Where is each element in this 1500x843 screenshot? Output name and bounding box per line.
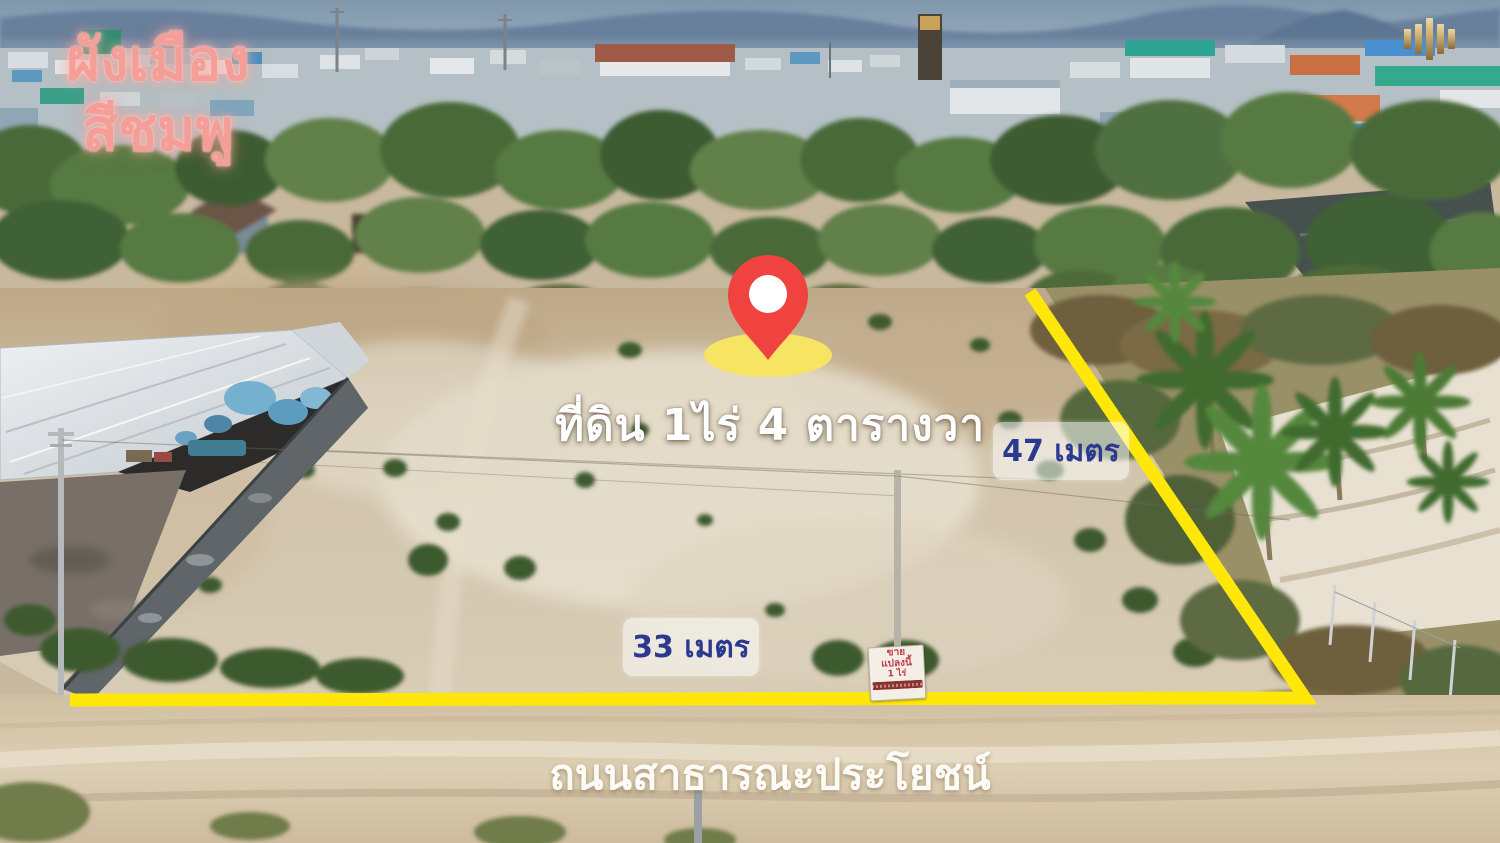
- logo-bar: [1437, 24, 1444, 54]
- sale-sign-line2: แปลงนี้: [881, 657, 912, 670]
- logo-bar: [1415, 24, 1422, 54]
- logo-bar: [1426, 18, 1433, 60]
- frontage-measurement-badge: 33 เมตร: [623, 618, 759, 676]
- logo-bar: [1404, 29, 1411, 49]
- side-measurement-badge: 47 เมตร: [993, 422, 1129, 480]
- sale-sign-line3: 1 ไร่: [887, 669, 906, 681]
- gold-bars-logo: [1404, 16, 1460, 62]
- zoning-label-line2: สีชมพู: [28, 96, 288, 166]
- side-measurement-text: 47 เมตร: [1002, 428, 1120, 475]
- location-pin-graphic: [688, 254, 848, 386]
- location-marker: [688, 254, 848, 386]
- zoning-label: ผังเมือง สีชมพู: [28, 26, 288, 165]
- road-label: ถนนสาธารณะประโยชน์: [450, 742, 1090, 808]
- logo-bar: [1448, 29, 1455, 49]
- aerial-photo: ผังเมือง สีชมพู ที่ดิน 1ไร่ 4 ตารางวา 47…: [0, 0, 1500, 843]
- pin-inner-circle: [749, 275, 787, 313]
- zoning-label-line1: ผังเมือง: [28, 26, 288, 96]
- for-sale-sign: ขาย แปลงนี้ 1 ไร่: [868, 645, 927, 702]
- frontage-measurement-text: 33 เมตร: [632, 624, 750, 671]
- sale-sign-phone-strip: [873, 680, 923, 691]
